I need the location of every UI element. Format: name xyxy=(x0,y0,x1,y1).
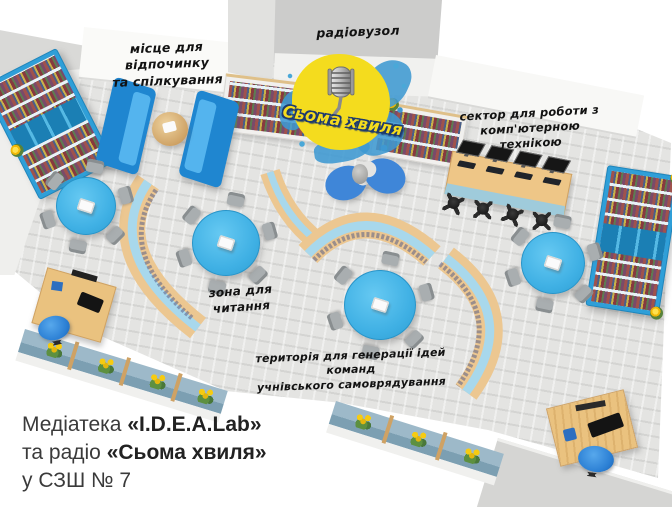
plant xyxy=(146,370,170,392)
plant xyxy=(407,427,431,449)
plant xyxy=(193,384,217,406)
round-table xyxy=(344,270,416,340)
caption-line-2: та радіо «Сьома хвиля» xyxy=(22,439,267,467)
coffee-table xyxy=(152,112,188,146)
caption-line-3: у СЗШ № 7 xyxy=(22,467,267,495)
plant xyxy=(351,410,375,432)
round-table xyxy=(56,177,116,235)
desk-item xyxy=(51,281,63,291)
plant xyxy=(94,354,118,376)
radio-logo: Сьома хвиля xyxy=(284,52,414,164)
office-chair xyxy=(473,200,493,220)
sill-divider xyxy=(170,373,182,402)
pouf-side-table xyxy=(352,164,368,184)
sill-divider xyxy=(382,415,395,444)
label-rest-area: місце для відпочинку та спілкування xyxy=(93,37,241,91)
monitor xyxy=(587,412,624,438)
label-idea-territory: територія для генерації ідей команд учні… xyxy=(235,345,466,396)
sill-divider xyxy=(119,357,131,386)
caption-line-1: Медіатека «I.D.E.A.Lab» xyxy=(22,411,267,439)
label-computer-sector: сектор для роботи з комп'ютерною техніко… xyxy=(449,102,611,155)
media-library-visualization: Сьома хвиля місце для відпочинку та спіл… xyxy=(0,0,672,507)
sill-divider xyxy=(67,341,79,370)
sill-divider xyxy=(435,432,448,461)
round-table xyxy=(192,210,260,276)
office-chair xyxy=(533,212,551,230)
laptop xyxy=(77,291,104,313)
round-table xyxy=(521,232,585,294)
desk-shelf xyxy=(575,400,606,411)
label-reading-zone: зона для читання xyxy=(193,281,289,319)
plant xyxy=(460,444,484,466)
caption: Медіатека «I.D.E.A.Lab» та радіо «Сьома … xyxy=(22,411,267,495)
desk-item xyxy=(563,427,578,442)
